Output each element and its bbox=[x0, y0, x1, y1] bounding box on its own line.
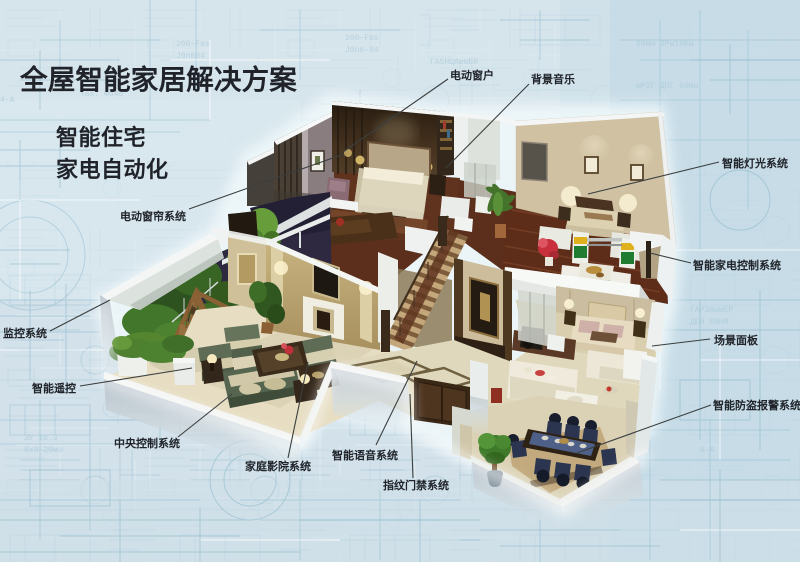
svg-text:0х9-20мз: 0х9-20мз bbox=[24, 446, 63, 455]
svg-text:智能灯光系统: 智能灯光系统 bbox=[722, 156, 788, 170]
svg-text:ГАРЗАммЕР: ГАРЗАммЕР bbox=[690, 306, 733, 315]
svg-text:智能防盗报警系统: 智能防盗报警系统 bbox=[713, 398, 800, 412]
svg-text:背景音乐: 背景音乐 bbox=[531, 72, 575, 86]
svg-text:智能语音系统: 智能语音系统 bbox=[332, 448, 398, 462]
svg-text:200-Fas: 200-Fas bbox=[345, 34, 379, 43]
svg-text:场景面板: 场景面板 bbox=[714, 333, 759, 347]
svg-text:А-А: А-А bbox=[700, 446, 715, 455]
svg-text:智能住宅: 智能住宅 bbox=[56, 125, 146, 150]
svg-text:智能家电控制系统: 智能家电控制系统 bbox=[693, 258, 781, 272]
svg-text:电动窗户: 电动窗户 bbox=[450, 68, 494, 82]
svg-text:ДЕН 60НМ: ДЕН 60НМ bbox=[690, 318, 729, 327]
svg-text:ЗУ 16.3: ЗУ 16.3 bbox=[24, 434, 58, 443]
svg-text:ГА5НЦАммЕR: ГА5НЦАммЕR bbox=[430, 58, 478, 67]
svg-text:中央控制系统: 中央控制系统 bbox=[114, 436, 180, 450]
svg-text:监控系统: 监控系统 bbox=[3, 326, 47, 340]
svg-text:60mw 3Pw1HKw: 60mw 3Pw1HKw bbox=[636, 40, 694, 49]
svg-text:全屋智能家居解决方案: 全屋智能家居解决方案 bbox=[19, 64, 297, 95]
svg-text:家电自动化: 家电自动化 bbox=[56, 157, 169, 182]
svg-text:家庭影院系统: 家庭影院系统 bbox=[245, 459, 311, 473]
svg-text:J0n604: J0n604 bbox=[176, 52, 205, 61]
svg-text:мР2Г ДПГ 60mw: мР2Г ДПГ 60mw bbox=[636, 82, 699, 91]
svg-text:200-Fas: 200-Fas bbox=[176, 40, 210, 49]
svg-text:智能遥控: 智能遥控 bbox=[32, 381, 76, 395]
svg-text:4-А: 4-А bbox=[0, 96, 15, 105]
svg-text:指纹门禁系统: 指纹门禁系统 bbox=[383, 478, 449, 492]
svg-text:J0n6-04: J0n6-04 bbox=[345, 46, 379, 55]
svg-text:电动窗帘系统: 电动窗帘系统 bbox=[120, 209, 186, 223]
